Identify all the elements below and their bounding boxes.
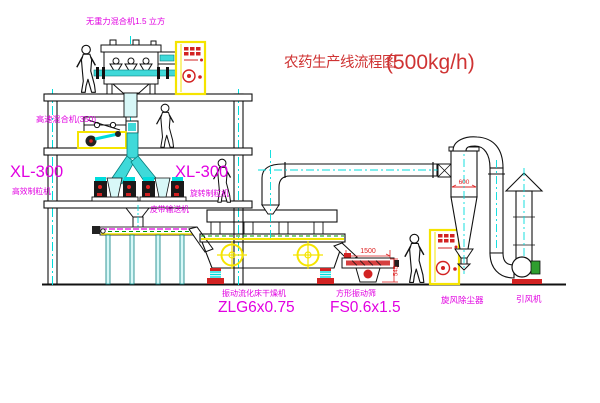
diagram-title-capacity: (500kg/h): [386, 51, 475, 74]
label-high-speed-mixer: 高速混合机(350): [36, 114, 96, 124]
control-cabinet-bottom: [430, 230, 459, 284]
label-dryer-model: ZLG6x0.75: [218, 299, 295, 316]
exhaust-duct: [258, 150, 462, 238]
dimension-text-1500: 1500: [360, 248, 376, 255]
label-screen-model: FS0.6x1.5: [330, 299, 401, 316]
induced-draft-fan: [512, 257, 542, 284]
label-granulator-left-model: XL-300: [10, 163, 63, 181]
person-figure: [77, 45, 96, 92]
label-granulator-right-model: XL-300: [175, 163, 228, 181]
label-screen-name: 方形振动筛: [336, 288, 376, 298]
mixer-down-chute: [124, 93, 137, 117]
granulator-left-unit: [92, 177, 138, 201]
person-figure: [405, 234, 424, 282]
dimension-text-545: 545: [394, 265, 400, 276]
dryer-spring-feet: [207, 268, 334, 284]
label-granulator-right-name: 旋转制粒机: [190, 188, 229, 198]
diagram-canvas: 无重力混合机1.5 立方 农药生产线流程图 (500kg/h) 高速混合机(35…: [0, 0, 600, 403]
diagram-title: 农药生产线流程图: [284, 54, 396, 71]
control-cabinet-top: [176, 42, 205, 94]
label-dryer-name: 振动流化床干燥机: [222, 288, 286, 298]
person-figure: [157, 104, 174, 147]
belt-conveyor: [92, 226, 213, 284]
label-granulator-left-name: 高效制粒机: [12, 186, 51, 196]
dimension-text-600: 600: [459, 179, 470, 186]
label-fan: 引风机: [516, 294, 542, 304]
label-belt-conveyor: 皮带输送机: [150, 204, 189, 214]
screen-motor-icon: [364, 270, 373, 279]
fluid-bed-dryer: [200, 210, 357, 284]
label-gravity-mixer: 无重力混合机1.5 立方: [86, 16, 165, 26]
vibration-motor-icon: [217, 241, 323, 269]
process-flow-diagram: 无重力混合机1.5 立方 农药生产线流程图 (500kg/h) 高速混合机(35…: [0, 0, 600, 403]
label-cyclone: 旋风除尘器: [441, 295, 484, 305]
